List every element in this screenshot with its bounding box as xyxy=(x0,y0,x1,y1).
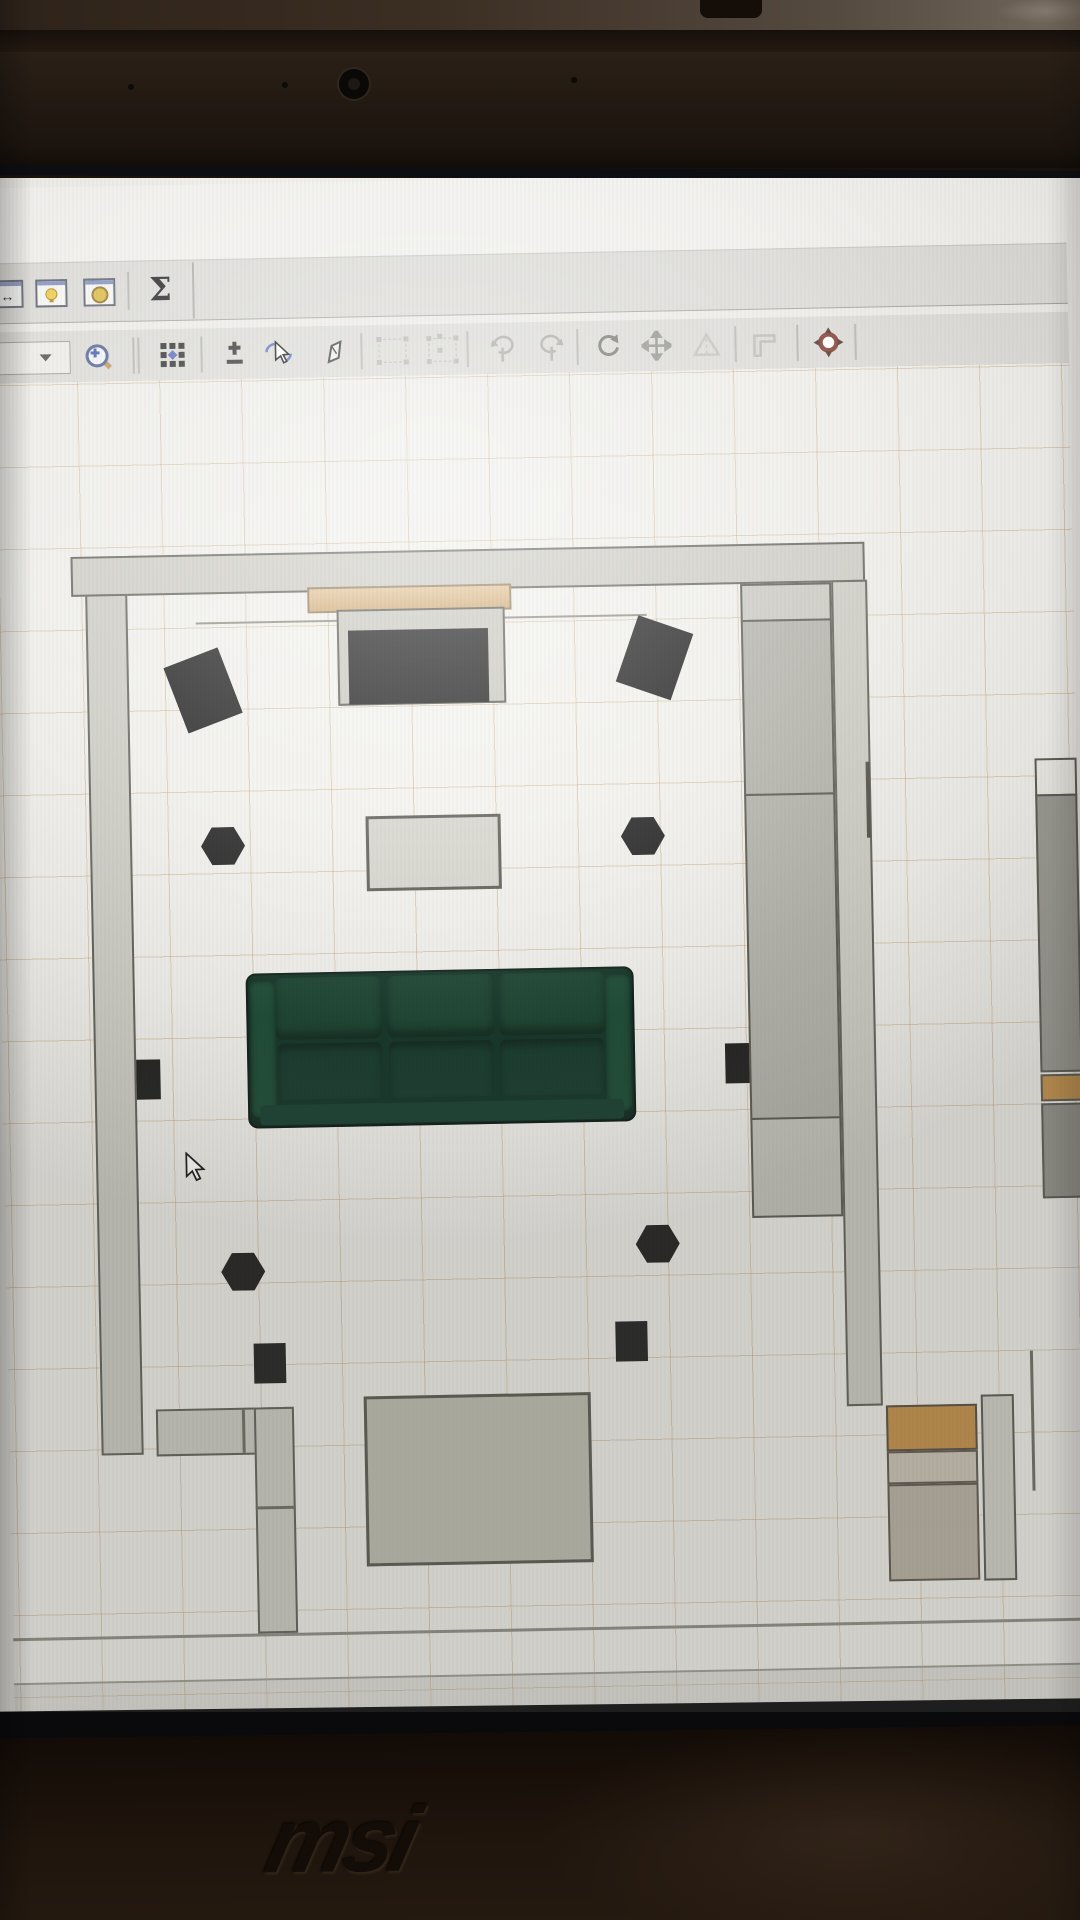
magnifier-plus-icon xyxy=(81,341,112,372)
wall-speaker-right[interactable] xyxy=(725,1043,750,1083)
hex-marker-upper-right[interactable] xyxy=(621,816,666,857)
right-column-lower[interactable] xyxy=(1041,1103,1080,1199)
flip-triangle-icon xyxy=(690,330,723,359)
window-titlebar-icon xyxy=(37,281,65,286)
wardrobe-section-2[interactable] xyxy=(741,618,835,796)
right-column-upper[interactable] xyxy=(1035,794,1080,1073)
sofa[interactable] xyxy=(245,966,636,1128)
pen-icon xyxy=(321,338,348,366)
bezel-dot xyxy=(128,84,134,90)
target-compass-icon xyxy=(812,326,845,359)
plus-over-bar-icon xyxy=(220,339,249,368)
tv[interactable] xyxy=(348,628,489,705)
corner-flag-icon xyxy=(748,329,781,358)
wall-line-far-right xyxy=(1030,1351,1036,1491)
group-select-button[interactable] xyxy=(374,332,411,369)
laptop-bottom: msi xyxy=(0,1698,1080,1920)
dashed-selection-icon xyxy=(378,338,406,363)
pattern-grid-button[interactable] xyxy=(154,337,191,374)
floor-plan-canvas[interactable] xyxy=(0,363,1080,1712)
dashed-selection-dots-icon xyxy=(428,337,456,362)
rotate-pin-icon xyxy=(488,333,517,364)
wall-bottom-left-vertical[interactable] xyxy=(254,1407,298,1634)
corner-flag-button[interactable] xyxy=(746,325,783,362)
laptop-photo: ↔ Σ xyxy=(0,0,1080,1920)
lid-highlight xyxy=(940,0,1080,28)
draw-pen-button[interactable] xyxy=(316,333,353,370)
cabinet-bottom-right-middle[interactable] xyxy=(887,1450,979,1485)
cabinet-bottom-right-body[interactable] xyxy=(887,1483,980,1582)
chevron-down-icon xyxy=(40,354,52,361)
laptop-screen: ↔ Σ xyxy=(0,178,1080,1712)
bezel-dot xyxy=(571,77,577,83)
double-arrow-icon: ↔ xyxy=(0,286,22,307)
plan-bottom-line-1 xyxy=(13,1618,1080,1642)
dot-grid-icon xyxy=(160,343,184,367)
hex-marker-lower-left[interactable] xyxy=(221,1251,266,1292)
laptop-body: msi xyxy=(0,1725,1080,1920)
right-column-wood-strip[interactable] xyxy=(1041,1074,1080,1102)
msi-logo: msi xyxy=(256,1792,560,1896)
wardrobe-section-bottom[interactable] xyxy=(750,1116,843,1218)
flip-button[interactable] xyxy=(688,326,725,363)
lightbulb-stem-icon xyxy=(50,299,54,302)
coffee-table[interactable] xyxy=(365,814,501,892)
speaker-front-right[interactable] xyxy=(616,615,694,700)
rotate-pin-icon xyxy=(537,332,566,363)
cabinet-bottom-right-wood-top[interactable] xyxy=(886,1404,978,1452)
target-origin-button[interactable] xyxy=(810,324,847,361)
wardrobe-section-top[interactable] xyxy=(740,582,832,622)
dimensions-window-button[interactable]: ↔ xyxy=(0,280,24,309)
coin-window-button[interactable] xyxy=(83,278,116,307)
window-titlebar-icon xyxy=(85,280,113,285)
rotate-arrow-icon xyxy=(594,332,623,361)
zoom-select[interactable] xyxy=(0,341,71,376)
move-arrows-icon xyxy=(641,330,672,361)
hex-marker-upper-left[interactable] xyxy=(201,826,246,867)
webcam xyxy=(337,67,371,101)
wall-speaker-left[interactable] xyxy=(136,1059,161,1099)
rotate-button[interactable] xyxy=(590,328,627,365)
webcam-lens xyxy=(348,78,360,90)
wall-left[interactable] xyxy=(85,594,144,1456)
right-column-cap[interactable] xyxy=(1035,758,1078,797)
bottom-table[interactable] xyxy=(364,1392,594,1566)
coin-icon xyxy=(91,286,108,303)
cabinet-bottom-right-side-bar[interactable] xyxy=(981,1394,1018,1581)
wardrobe-section-3[interactable] xyxy=(744,792,841,1120)
move-button[interactable] xyxy=(638,327,675,364)
floor-marker-right[interactable] xyxy=(615,1321,648,1362)
cursor-rotate-icon xyxy=(262,338,295,369)
hex-marker-lower-right[interactable] xyxy=(635,1223,680,1264)
rotate-pin-right-button[interactable] xyxy=(533,329,570,366)
select-rotate-button[interactable] xyxy=(260,335,297,372)
group-select-plus-button[interactable] xyxy=(424,331,461,368)
floor-marker-left[interactable] xyxy=(254,1343,287,1384)
speaker-front-left[interactable] xyxy=(163,647,242,733)
top-bezel xyxy=(0,52,1080,168)
add-point-button[interactable] xyxy=(216,335,253,372)
mouse-cursor xyxy=(182,1151,209,1181)
hinge-notch xyxy=(700,0,762,18)
rotate-pin-left-button[interactable] xyxy=(484,330,521,367)
lid-gap xyxy=(0,30,1080,52)
lightbulb-window-button[interactable] xyxy=(35,279,68,308)
zoom-in-button[interactable] xyxy=(78,338,115,375)
sum-button[interactable]: Σ xyxy=(143,271,178,308)
laptop-lid-edge xyxy=(0,0,1080,30)
floor-planner-app: ↔ Σ xyxy=(0,178,1080,1712)
bezel-dot xyxy=(282,82,288,88)
